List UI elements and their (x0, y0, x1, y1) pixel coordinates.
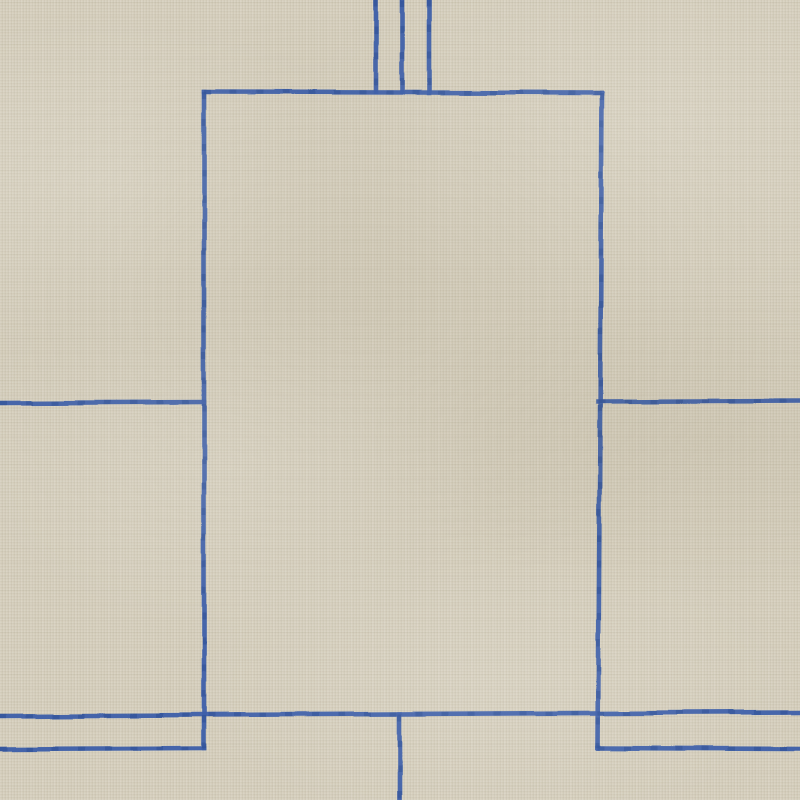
rug-line-art (0, 0, 800, 800)
rug-photo (0, 0, 800, 800)
